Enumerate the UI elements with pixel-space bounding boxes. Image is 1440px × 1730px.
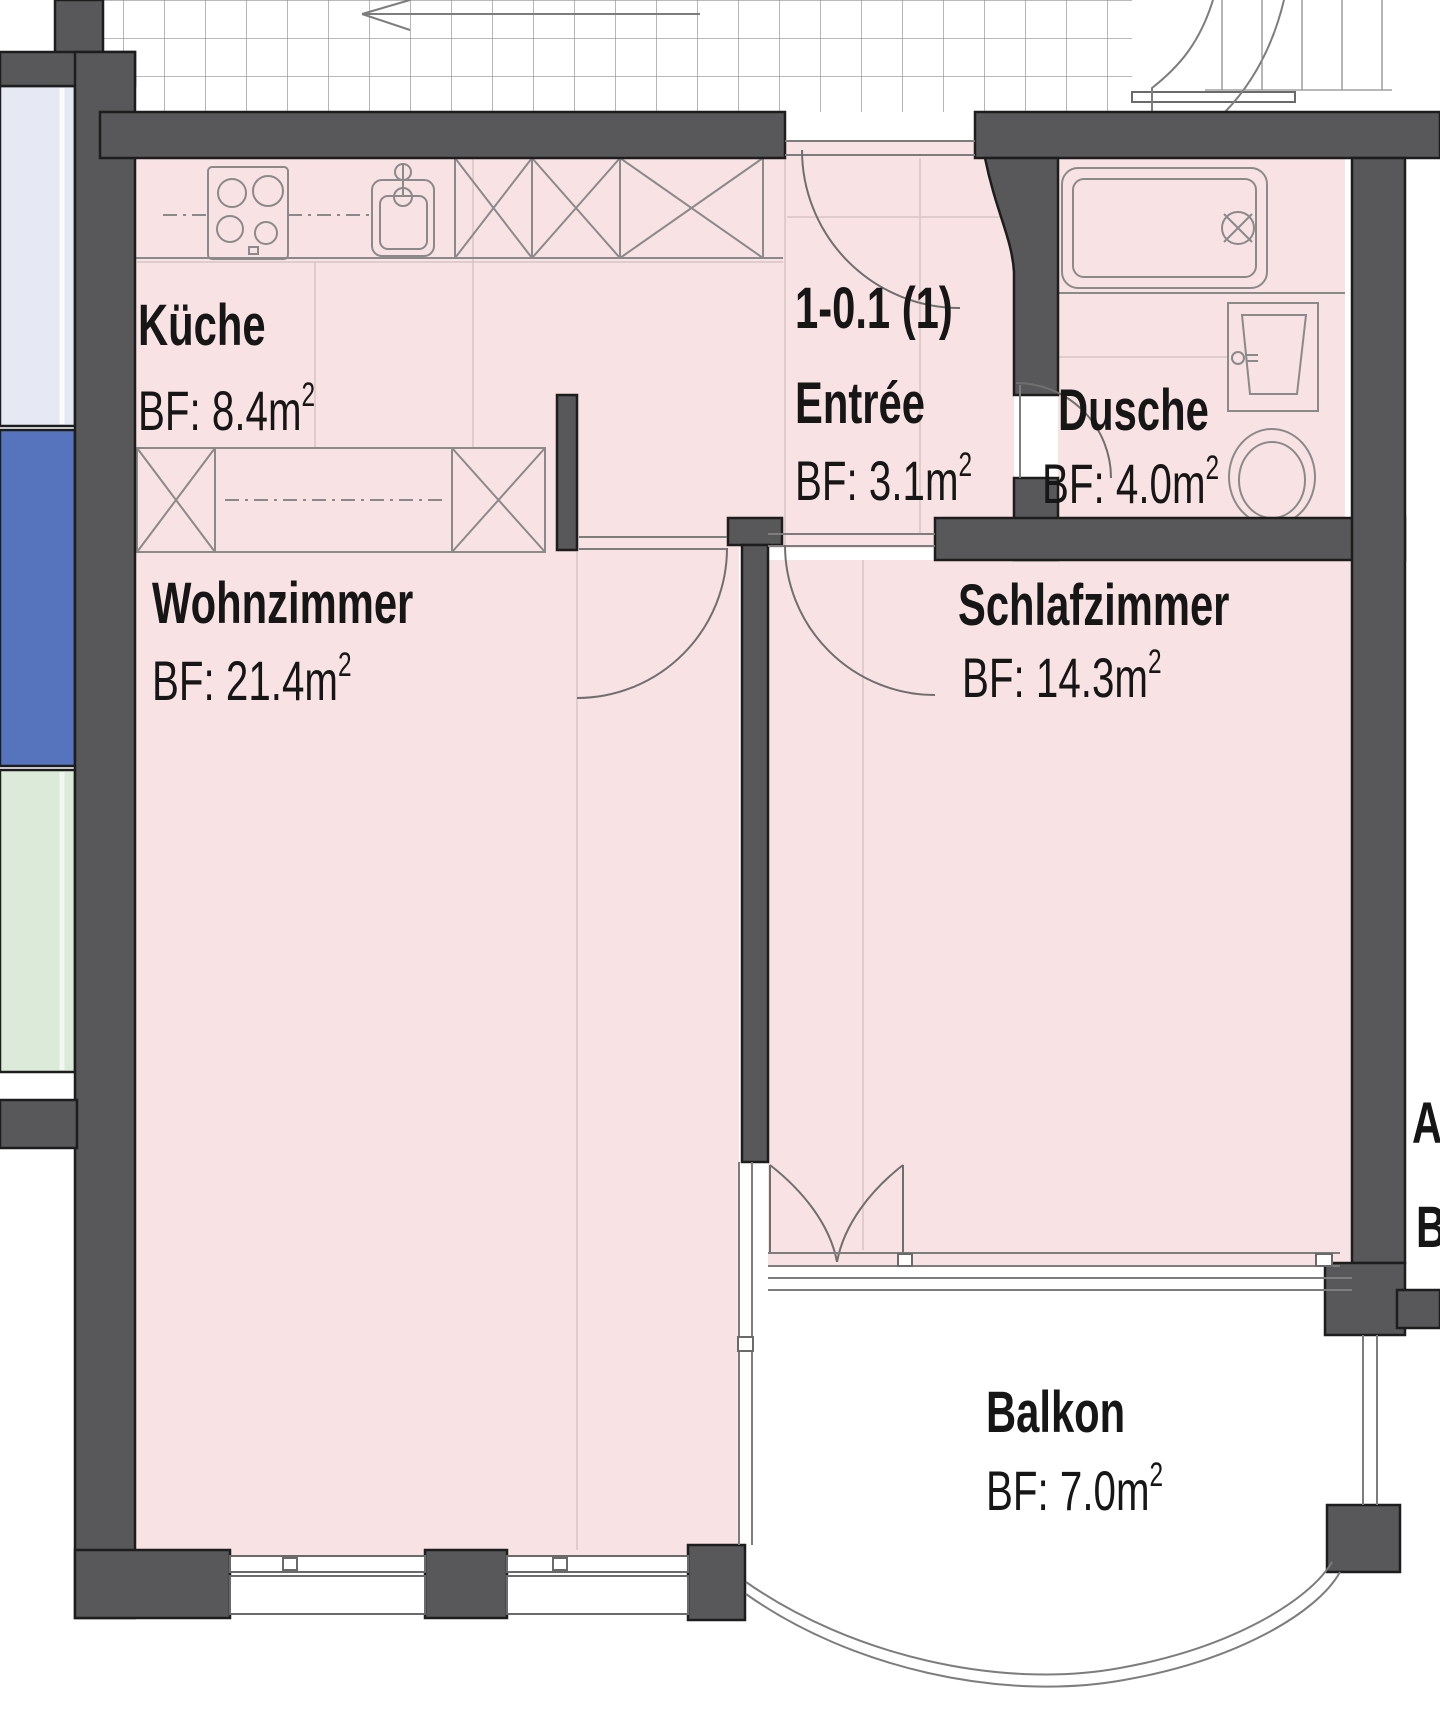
room-label-schlafzimmer: Schlafzimmer [958, 572, 1229, 637]
room-label-balkon: Balkon [986, 1379, 1125, 1444]
wall-right-outer [1352, 158, 1405, 1263]
stair-tile-grid [100, 0, 1132, 112]
window-living-2 [507, 1556, 688, 1614]
wall-left-outer [75, 52, 135, 1618]
partial-label-right-1: A [1412, 1090, 1440, 1155]
wall-top-right [975, 112, 1440, 158]
room-area-entree: BF: 3.1m2 [795, 446, 972, 512]
balcony-pillar [1327, 1505, 1400, 1572]
room-label-wohnzimmer: Wohnzimmer [152, 570, 413, 635]
adjacent-room-blue [0, 430, 75, 766]
stairwell [100, 0, 1392, 112]
room-label-dusche: Dusche [1058, 377, 1209, 442]
wall-bedroom-top [935, 518, 1405, 560]
room-area-kueche: BF: 8.4m2 [138, 376, 315, 442]
room-area-schlafzimmer: BF: 14.3m2 [962, 643, 1162, 709]
window-living-1 [230, 1556, 425, 1614]
room-area-wohnzimmer: BF: 21.4m2 [152, 646, 352, 712]
wall-top-kitchen [100, 112, 785, 158]
room-area-balkon: BF: 7.0m2 [986, 1456, 1163, 1522]
balcony-railing-curve [746, 1562, 1332, 1675]
wall-stub-kitchen [557, 395, 577, 550]
room-label-kueche: Küche [138, 292, 266, 357]
apartment-id-label: 1-0.1 (1) [795, 275, 953, 340]
window-living-balcony-side [738, 1162, 753, 1545]
stair-handrail [1132, 92, 1295, 102]
wall-living-bedroom [742, 545, 768, 1162]
room-label-entree: Entrée [795, 370, 925, 435]
floor-plan: Küche BF: 8.4m2 1-0.1 (1) Entrée BF: 3.1… [0, 0, 1440, 1730]
adjacent-unit-strip [0, 86, 75, 1072]
partial-label-right-2: B [1416, 1194, 1440, 1259]
stair-treads [1205, 0, 1392, 90]
floor-plan-page: Küche BF: 8.4m2 1-0.1 (1) Entrée BF: 3.1… [0, 0, 1440, 1730]
room-area-dusche: BF: 4.0m2 [1042, 449, 1219, 515]
